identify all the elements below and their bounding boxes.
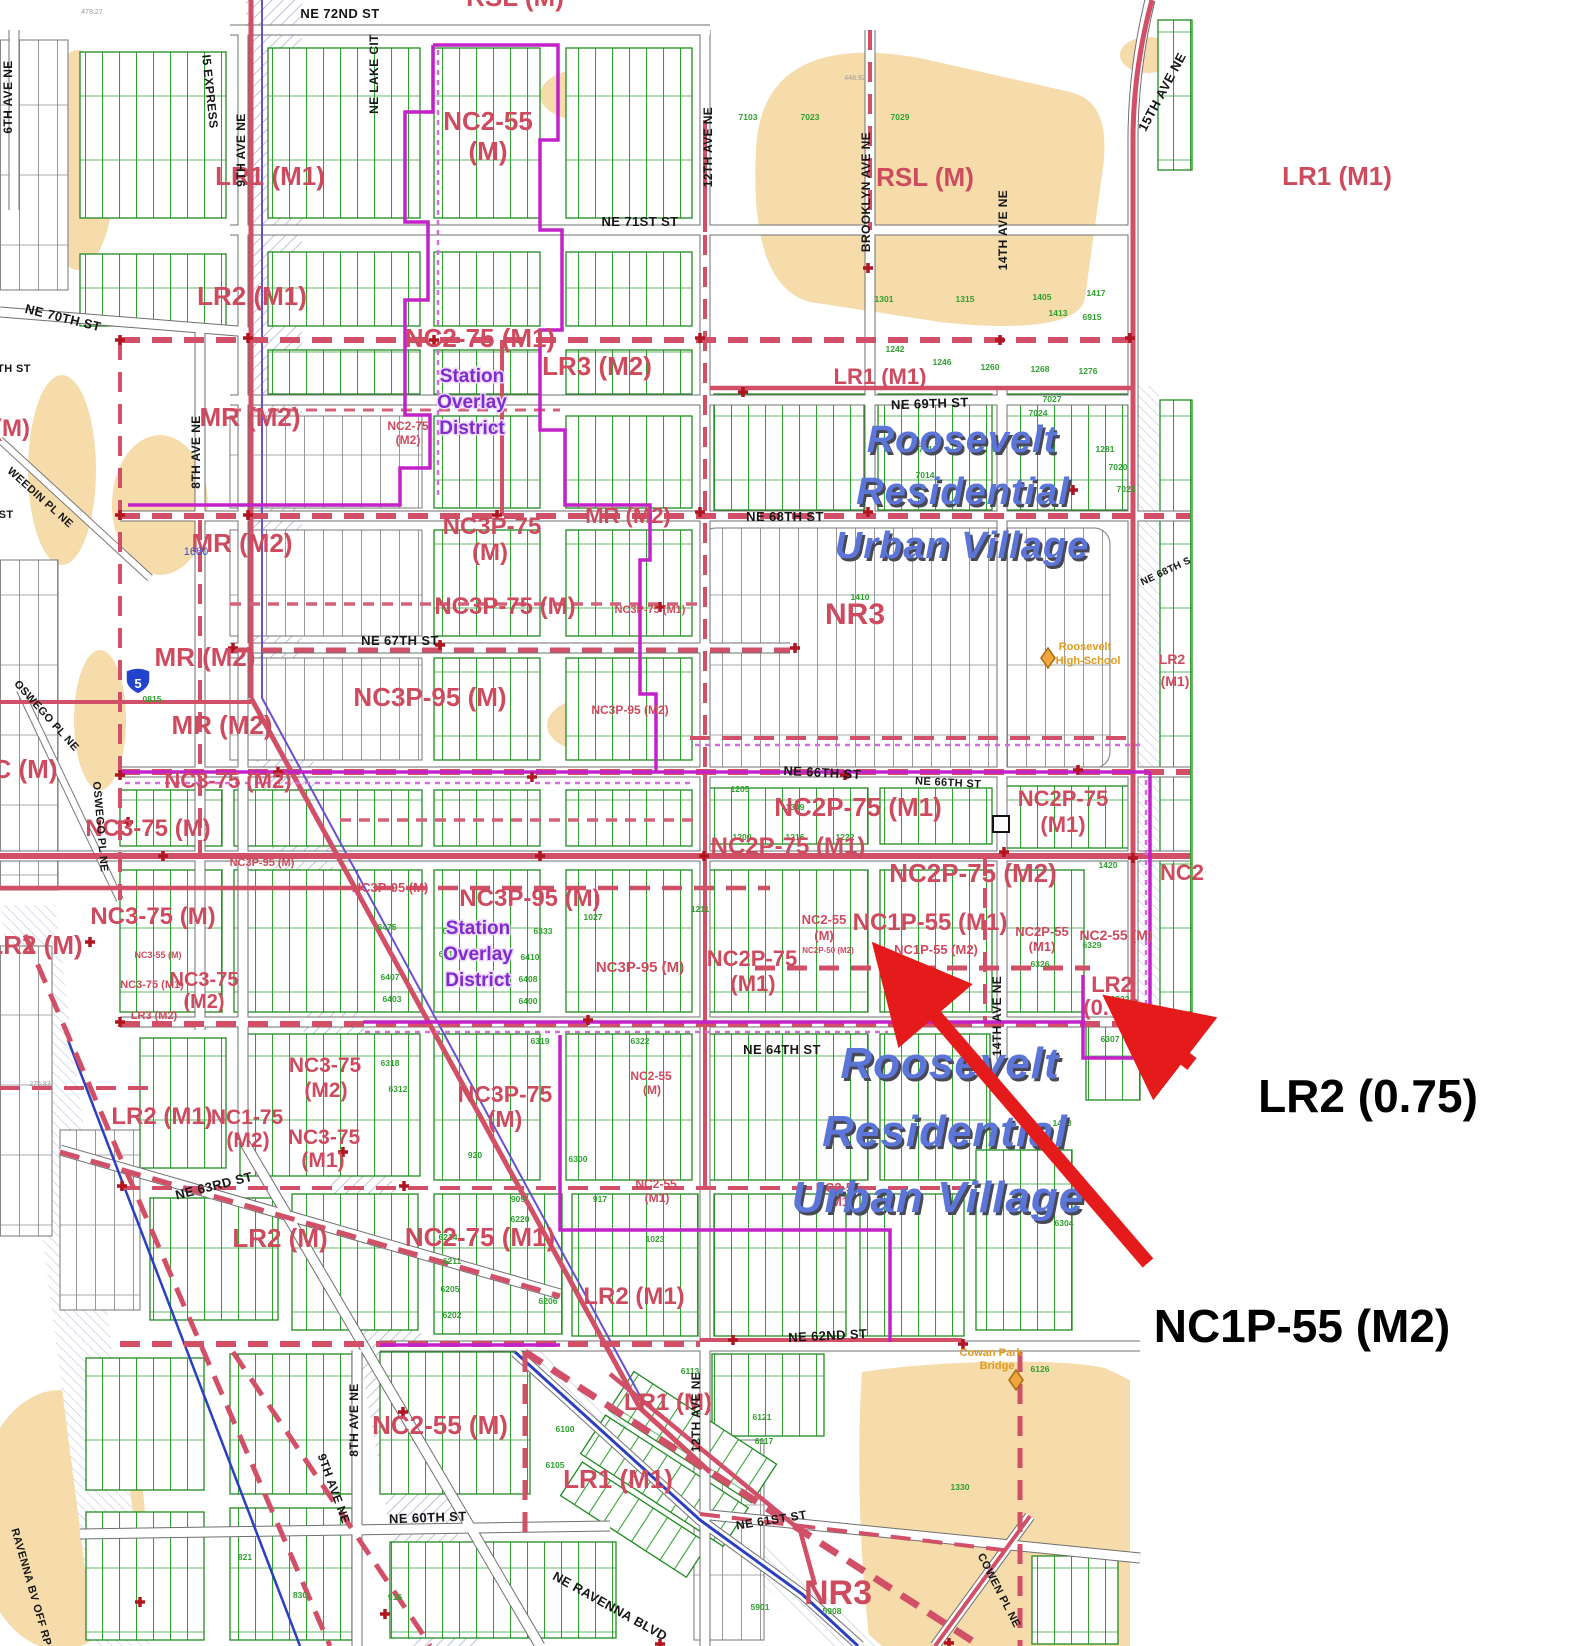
zone-label: NC3-75 xyxy=(288,1126,361,1149)
zone-label: (M1) xyxy=(730,971,775,996)
parcel-number: 6105 xyxy=(546,1460,565,1470)
svg-text:5: 5 xyxy=(134,676,141,691)
zone-label: LR2 (M) xyxy=(232,1223,327,1253)
parcel-number: 1268 xyxy=(1031,364,1050,374)
zone-label: NC3-75 xyxy=(289,1054,362,1077)
zone-label: NC3P-95 (M2) xyxy=(591,703,668,717)
poi-label: Cowan Park xyxy=(960,1347,1024,1359)
parcel-number: 1301 xyxy=(875,294,894,304)
zone-label: MR (M2) xyxy=(154,642,255,672)
parcel-number: 6408 xyxy=(519,974,538,984)
zone-label: MR (M2) xyxy=(585,503,671,528)
parcel-number: 6475 xyxy=(378,922,397,932)
zone-label: NC2P-50 (M2) xyxy=(802,946,854,955)
street-label: NE 71ST ST xyxy=(602,214,679,229)
zone-label: (M) xyxy=(643,1083,661,1097)
parcel-number: 1413 xyxy=(1049,308,1068,318)
zone-label: LR2 (M1) xyxy=(583,1283,684,1310)
parcel-number: 6312 xyxy=(389,1084,408,1094)
zoning-map-screenshot: 5 71037023702970277024702070237018701412… xyxy=(0,0,1572,1646)
zone-label: NC2-55 xyxy=(630,1069,672,1083)
vacated-parcel-box-symbol xyxy=(993,816,1009,832)
parcel-number: 909 xyxy=(511,1194,525,1204)
parcel-number: 821 xyxy=(238,1552,252,1562)
parcel-number: 1330 xyxy=(951,1482,970,1492)
zone-label: NC1-75 xyxy=(211,1106,284,1129)
street-label: 9TH AVE NE xyxy=(234,113,248,186)
parcel-number: 6333 xyxy=(534,926,553,936)
parcel-number: 1276 xyxy=(1079,366,1098,376)
zone-label: NC2-75 (M1) xyxy=(405,1222,555,1252)
zone-label: NC2-55 (M) xyxy=(372,1410,508,1440)
parcel-number: 7027 xyxy=(1043,394,1062,404)
street-label: ST xyxy=(0,509,13,521)
zone-label: NC2-55 (M) xyxy=(1079,927,1152,943)
zone-label: NC3-55 (M) xyxy=(134,950,181,960)
urban-village-label: Roosevelt xyxy=(840,1039,1061,1088)
zone-label: NC3P-95 (M) xyxy=(459,885,600,912)
street-label: 14TH AVE NE xyxy=(990,976,1004,1056)
survey-number-label: 478.27 xyxy=(81,9,103,16)
street-label: NE 66TH ST xyxy=(783,763,861,782)
parcel-number: 920 xyxy=(468,1150,482,1160)
zone-label: (M) xyxy=(0,415,30,442)
parcel-number: 1246 xyxy=(933,357,952,367)
zone-label: LR1 (M1) xyxy=(215,161,325,191)
zone-label: NC3-75 (M2) xyxy=(164,768,291,793)
zone-label: NC2P-75 (M1) xyxy=(774,792,942,822)
zone-label: NR3 xyxy=(825,598,885,631)
zone-label: NC3-75 (M) xyxy=(90,903,215,930)
street-label: NE 69TH ST xyxy=(891,395,969,413)
street-label: BROOKLYN AVE NE xyxy=(859,132,873,252)
zone-label: LR3 (M2) xyxy=(131,1010,178,1022)
street-label: 14TH AVE NE xyxy=(996,190,1010,270)
parcel-number: 6400 xyxy=(519,996,538,1006)
zone-label: RSL (M) xyxy=(876,162,974,192)
overlay-district-label: Station xyxy=(446,918,510,939)
street-label: 8TH AVE NE xyxy=(347,1383,361,1456)
zone-label: NC3-75 xyxy=(170,969,239,991)
street-label: NE 60TH ST xyxy=(389,1509,467,1527)
parcel-number: 6205 xyxy=(441,1284,460,1294)
zone-label: NC2-55 xyxy=(443,106,533,136)
parcel-number: 6318 xyxy=(381,1058,400,1068)
zone-label: NC3P-95 (M) xyxy=(353,682,506,712)
zone-label: RSL (M) xyxy=(466,0,564,12)
interstate-5-shield-icon: 5 xyxy=(126,668,150,694)
zone-label: (M1) xyxy=(1029,939,1056,954)
parcel-number: 6322 xyxy=(631,1036,650,1046)
zone-label: LR1 (M1) xyxy=(834,364,927,389)
parcel-number: 830 xyxy=(293,1590,307,1600)
parcel-number: 6403 xyxy=(383,994,402,1004)
zone-label: NC3P-95 (M) xyxy=(352,880,429,895)
zone-label: (M2) xyxy=(304,1079,347,1102)
zone-label: MR (M2) xyxy=(199,402,300,432)
street-label: 6TH AVE NE xyxy=(1,60,15,133)
parcel-number: 7029 xyxy=(891,112,910,122)
parcel-number: 1023 xyxy=(646,1234,665,1244)
zone-label: NC3P-95 (M) xyxy=(230,857,295,869)
zone-label: NC2-55 xyxy=(802,912,847,927)
urban-village-label: Urban Village xyxy=(792,1173,1085,1222)
zone-label: NC2 xyxy=(1160,860,1204,885)
parcel-number: 7023 xyxy=(1117,484,1136,494)
street-label: 12TH AVE NE xyxy=(701,107,715,187)
parcel-number: 917 xyxy=(593,1194,607,1204)
poi-label: Bridge xyxy=(980,1360,1015,1372)
survey-cross-icon xyxy=(85,937,95,947)
parcel-number: 6202 xyxy=(443,1310,462,1320)
zone-label: LR1 (M1) xyxy=(1282,161,1392,191)
zone-label: (M2) xyxy=(396,433,421,447)
poi-label: Roosevelt xyxy=(1059,641,1112,653)
zone-label: NC2-75 (M1) xyxy=(405,323,555,353)
zone-label: (M) xyxy=(469,136,508,166)
callout-label-nc1p-55-m2: NC1P-55 (M2) xyxy=(1154,1300,1451,1352)
parcel-number: 1417 xyxy=(1087,288,1106,298)
urban-village-label: Residential xyxy=(856,471,1070,513)
parcel-number: 6307 xyxy=(1101,1034,1120,1044)
zone-label: NC1P-55 (M2) xyxy=(894,942,978,957)
parcel-number: 1405 xyxy=(1033,292,1052,302)
parcel-number: 1281 xyxy=(1096,444,1115,454)
zone-label: LR1 (M1) xyxy=(563,1464,673,1494)
parcel-number: 1211 xyxy=(691,904,710,914)
urban-village-label: Urban Village xyxy=(835,525,1089,567)
overlay-district-label: Overlay xyxy=(443,944,513,965)
poi-label: High-School xyxy=(1056,655,1121,667)
zone-label: NC2-55 xyxy=(635,1177,677,1191)
zone-label: NC1P-55 (M1) xyxy=(853,909,1008,936)
parcel-number: 1420 xyxy=(1099,860,1118,870)
callout-label-lr2-075: LR2 (0.75) xyxy=(1258,1070,1478,1122)
parcel-number: 1242 xyxy=(886,344,905,354)
parcel-number: 6117 xyxy=(755,1436,774,1446)
parcel-number: 6300 xyxy=(569,1154,588,1164)
zone-label: NC2P-75 (M2) xyxy=(889,858,1057,888)
zone-label: NC3 RC (M) xyxy=(0,754,58,784)
zone-label: (M) xyxy=(472,539,508,566)
parcel-number: 1260 xyxy=(981,362,1000,372)
zoning-map: 5 71037023702970277024702070237018701412… xyxy=(0,0,1572,1646)
parcel-number: 7023 xyxy=(801,112,820,122)
street-label: NE 68TH ST xyxy=(746,509,824,524)
zone-label: (M1) xyxy=(301,1149,344,1172)
zone-label: (M) xyxy=(488,1106,522,1132)
overlay-district-label: District xyxy=(445,970,511,991)
zone-label: LR3 (M2) xyxy=(542,351,652,381)
zone-label: (M1) xyxy=(1161,673,1190,689)
street-label: NE LAKE CIT xyxy=(367,34,381,114)
parcel-number: 7103 xyxy=(739,112,758,122)
zone-label: NC3P-75 (M) xyxy=(434,593,575,620)
parcel-number: 6326 xyxy=(1031,959,1050,969)
zone-label: (M) xyxy=(814,928,834,943)
parcel-number: 6121 xyxy=(753,1412,772,1422)
zone-label: NC2-75 xyxy=(387,419,429,433)
parcel-number: 6915 xyxy=(1083,312,1102,322)
parcel-number: 1027 xyxy=(584,912,603,922)
zone-label: (M1) xyxy=(1040,812,1085,837)
zone-label: LR2 xyxy=(1159,651,1186,667)
zone-label: NC2P-75 xyxy=(1018,786,1108,811)
zone-label: NC2P-55 xyxy=(1015,924,1068,939)
zone-label: LR2 (M) xyxy=(0,930,83,960)
zone-label: (M1) xyxy=(645,1191,670,1205)
parcel-number: 1315 xyxy=(956,294,975,304)
zone-label: LR2 (M1) xyxy=(111,1103,212,1130)
overlay-district-label: District xyxy=(439,418,505,439)
zone-label: NC2P-75 xyxy=(707,946,797,971)
street-label: NE 72ND ST xyxy=(300,6,379,21)
zone-label: LR2 xyxy=(1091,972,1133,997)
zone-label: NC3P-75 (M1) xyxy=(615,604,686,616)
zone-label: NC2P-75 (M1) xyxy=(711,833,866,860)
parcel-number: 6100 xyxy=(556,1424,575,1434)
survey-cross-icon xyxy=(995,335,1005,345)
survey-number-label: 275.83 xyxy=(29,1081,51,1088)
survey-cross-icon xyxy=(399,1181,409,1191)
parcel-number: 6407 xyxy=(381,972,400,982)
parcel-number: 7024 xyxy=(1029,408,1048,418)
parcel-number: 6211 xyxy=(443,1256,462,1266)
zone-label: NC3P-95 (M) xyxy=(596,959,684,976)
zone-label: (M2) xyxy=(226,1129,269,1152)
parcel-number: 1205 xyxy=(731,784,750,794)
parcel-number: 916 xyxy=(388,1592,402,1602)
parcel-id-label: 1680 xyxy=(184,546,208,558)
parcel-number: 0815 xyxy=(143,694,162,704)
street-label: TH ST xyxy=(0,363,31,375)
zone-label: NC3P-75 xyxy=(458,1081,553,1107)
parcel-number: 5901 xyxy=(751,1602,770,1612)
zone-label: MR (M2) xyxy=(171,710,272,740)
zone-label: (M2) xyxy=(183,991,224,1013)
street-label: 12TH AVE NE xyxy=(689,1372,703,1452)
survey-cross-icon xyxy=(380,1609,390,1619)
parcel-number: 6206 xyxy=(539,1296,558,1306)
street-label: 8TH AVE NE xyxy=(189,415,203,488)
street-label: NE 67TH ST xyxy=(361,633,439,648)
survey-cross-icon xyxy=(115,335,125,345)
parcel-number: 6410 xyxy=(521,952,540,962)
parcel-number: 6126 xyxy=(1031,1364,1050,1374)
parcel-number: 7020 xyxy=(1109,462,1128,472)
zone-label: NC3P-75 xyxy=(443,513,542,540)
overlay-district-label: Overlay xyxy=(437,392,507,413)
zone-label: LR2 (M1) xyxy=(197,281,307,311)
zone-label: NR3 xyxy=(804,1574,872,1612)
overlay-district-label: Station xyxy=(440,366,504,387)
parcel-number: 6319 xyxy=(531,1036,550,1046)
survey-number-label: 448.92 xyxy=(844,75,866,82)
urban-village-label: Roosevelt xyxy=(867,419,1058,461)
street-label: NE 64TH ST xyxy=(743,1042,821,1057)
